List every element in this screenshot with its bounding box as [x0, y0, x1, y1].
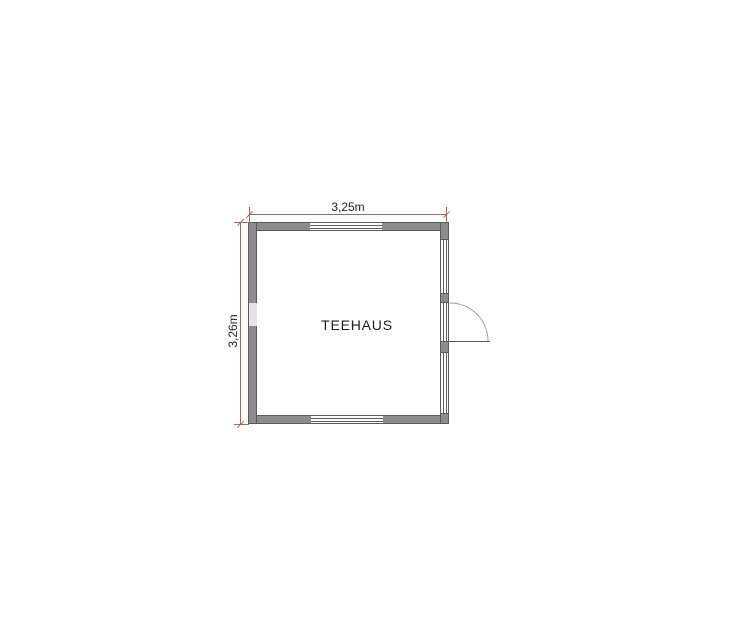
glazing-line — [310, 228, 382, 229]
window-icon — [310, 222, 382, 231]
dimension-line-left — [240, 222, 241, 424]
floorplan-canvas: 3,25m 3,26m TEEHAUS — [0, 0, 737, 639]
room-label: TEEHAUS — [321, 317, 393, 333]
door-swing-right-icon — [440, 295, 500, 350]
glazing-line — [310, 225, 382, 226]
wall-corner-bottom-right — [440, 413, 449, 424]
glazing-line — [311, 418, 383, 419]
window-panel-icon — [249, 303, 257, 326]
dimension-line-top — [249, 214, 447, 215]
glazing-line — [311, 421, 383, 422]
dimension-label-width: 3,25m — [249, 201, 447, 213]
wall-corner-top-right — [440, 222, 449, 240]
window-icon — [311, 415, 383, 424]
dimension-label-height: 3,26m — [227, 314, 239, 347]
